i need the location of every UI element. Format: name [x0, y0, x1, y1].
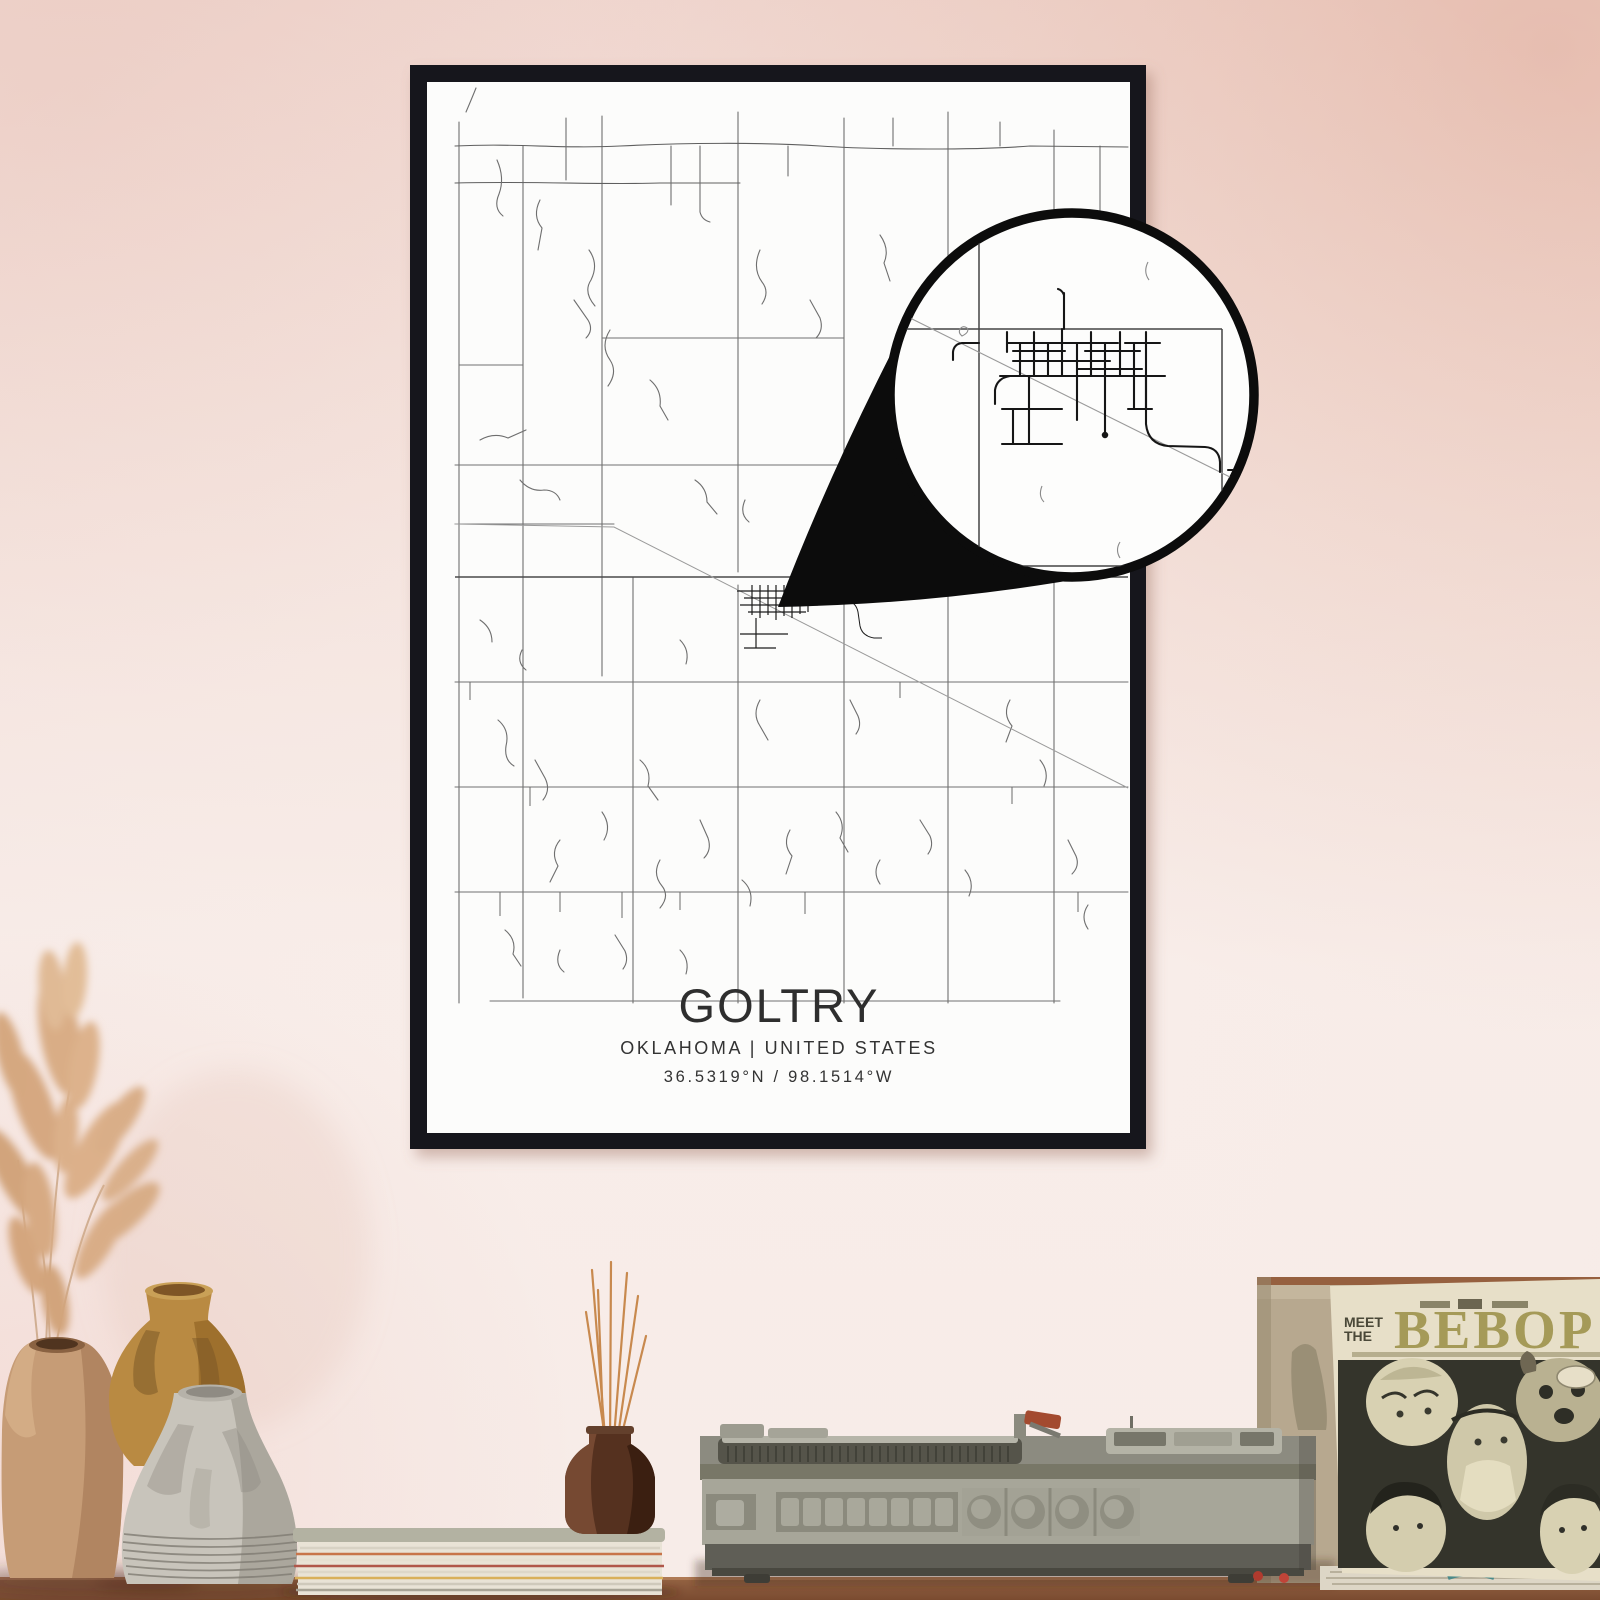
svg-text:BEBOP: BEBOP — [1394, 1299, 1595, 1360]
svg-text:36.5319°N / 98.1514°W: 36.5319°N / 98.1514°W — [664, 1068, 894, 1086]
svg-text:OKLAHOMA | UNITED STATES: OKLAHOMA | UNITED STATES — [620, 1038, 937, 1058]
svg-text:THE: THE — [1344, 1328, 1372, 1344]
svg-text:GOLTRY: GOLTRY — [679, 979, 880, 1032]
